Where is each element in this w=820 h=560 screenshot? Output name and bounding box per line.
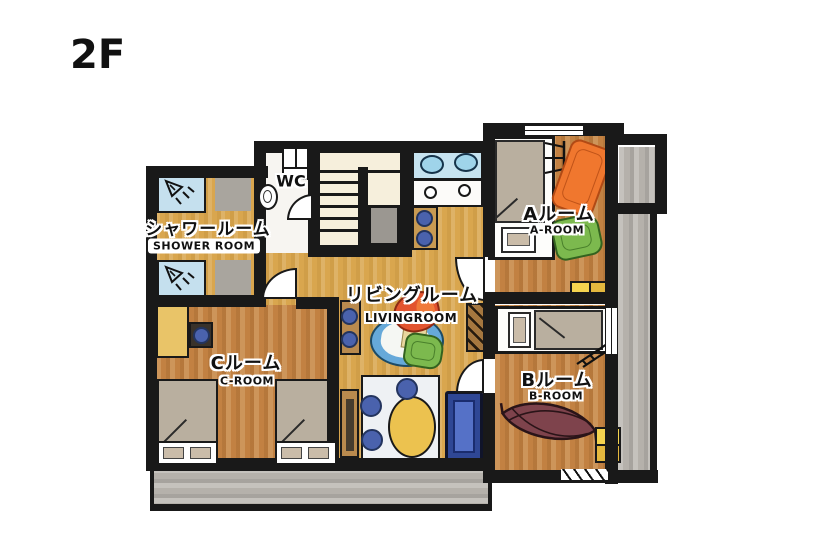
stove-burner [424, 186, 437, 199]
wall [327, 297, 339, 465]
bed-c1-pillows [157, 441, 218, 465]
room-label-wc: WC [276, 172, 305, 191]
shower-stall [157, 174, 206, 213]
balcony-wall [650, 214, 657, 476]
stair-divider-wall [358, 167, 368, 253]
window-b-room [606, 308, 617, 354]
room-label-b-en: B-ROOM [529, 390, 583, 403]
balcony-right-upper [619, 147, 655, 203]
floor-cushion-blue [396, 378, 418, 400]
wall [146, 166, 268, 178]
bed-c1-mattress [157, 379, 218, 443]
stair-step [320, 217, 358, 220]
stool-cushion [416, 210, 433, 227]
shower-head-icon [161, 264, 201, 294]
stair-step [320, 193, 358, 196]
floor-cushion-yellow [388, 396, 436, 458]
stair-step [320, 229, 358, 232]
stove-burner [458, 184, 471, 197]
balcony-wall [655, 134, 667, 213]
room-label-b-jp: Bルーム [521, 366, 592, 392]
floor-cushion-blue [360, 395, 382, 417]
stool-cushion [416, 230, 433, 247]
wall [483, 393, 495, 471]
stair-step [320, 205, 358, 208]
stool-cushion [193, 327, 210, 344]
wall [400, 141, 412, 253]
balcony-bottom [150, 464, 492, 511]
room-label-living-en: LIVINGROOM [365, 311, 457, 325]
wall [483, 300, 495, 359]
sofa [445, 391, 483, 462]
pillow [508, 312, 531, 348]
wall [483, 292, 618, 304]
room-label-shower-jp: シャワールーム [145, 215, 271, 240]
stair-landing-closet [368, 205, 400, 246]
floor-title: 2F [70, 32, 125, 78]
floor-plan-2f: 2F [0, 0, 820, 560]
stool-cushion [341, 308, 358, 325]
kitchen-sink-basin [420, 155, 444, 174]
room-label-c-jp: Cルーム [211, 349, 282, 375]
room-label-living-jp: リビングルーム [346, 281, 478, 307]
room-label-a-en: A-ROOM [530, 224, 584, 237]
stool-cushion [341, 331, 358, 348]
window-b-room-south [561, 469, 608, 480]
shower-mat [215, 260, 251, 297]
kitchen-stove-counter [412, 179, 483, 207]
room-label-a-jp: Aルーム [523, 200, 594, 226]
room-label-shower-en: SHOWER ROOM [148, 239, 260, 254]
wall [146, 295, 266, 307]
wall [146, 166, 157, 471]
balcony-wall [616, 203, 667, 214]
kitchen-sink-basin [454, 153, 478, 172]
desk-c [156, 302, 189, 358]
wall [483, 141, 495, 257]
shower-head-icon [161, 178, 201, 208]
shower-stall [157, 260, 206, 298]
floor-cushion-blue [361, 429, 383, 451]
shower-mat [215, 174, 251, 211]
room-label-c-en: C-ROOM [220, 375, 274, 388]
stair-step [320, 181, 358, 184]
window-a-room [525, 126, 583, 135]
cabinet [340, 389, 359, 458]
toilet-icon [258, 184, 278, 210]
bed-c2-pillows [275, 441, 337, 465]
balcony-right-lower [618, 214, 651, 474]
